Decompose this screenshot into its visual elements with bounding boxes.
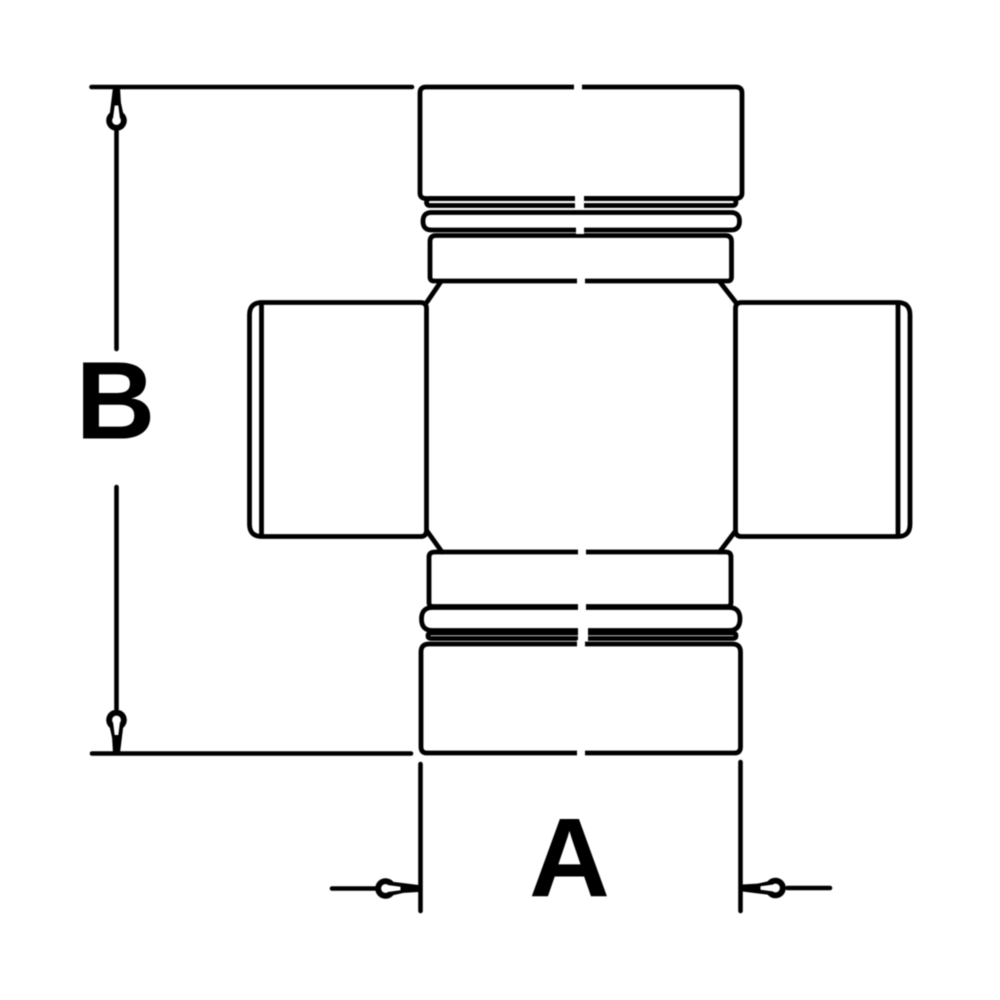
svg-text:B: B [76, 340, 155, 463]
svg-text:A: A [529, 796, 610, 921]
